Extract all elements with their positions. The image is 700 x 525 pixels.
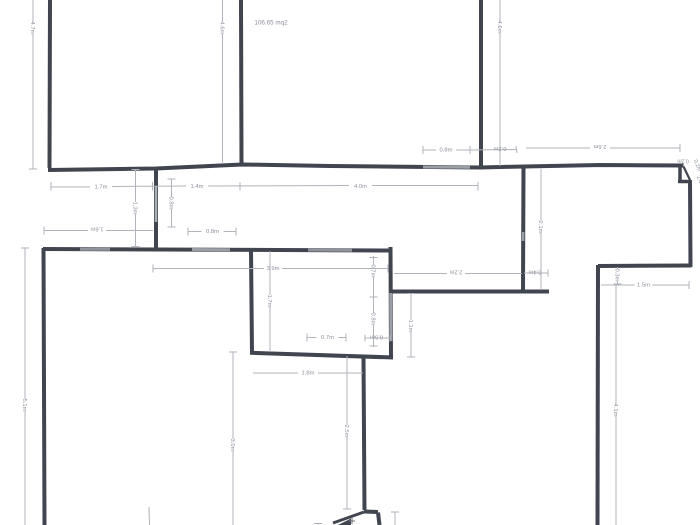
svg-text:0.3m: 0.3m bbox=[614, 269, 620, 282]
svg-text:0.8m: 0.8m bbox=[440, 148, 453, 154]
svg-text:0.4m: 0.4m bbox=[528, 269, 541, 275]
svg-text:0.8m: 0.8m bbox=[206, 229, 219, 235]
svg-text:1.1m: 1.1m bbox=[407, 320, 413, 333]
svg-text:4.0m: 4.0m bbox=[354, 184, 367, 190]
svg-text:0.7m: 0.7m bbox=[321, 335, 334, 341]
svg-text:106.65 mq2: 106.65 mq2 bbox=[254, 20, 288, 27]
svg-text:4.6m: 4.6m bbox=[219, 22, 225, 35]
svg-text:4.1m: 4.1m bbox=[612, 404, 618, 417]
svg-text:1.5m: 1.5m bbox=[637, 283, 650, 289]
svg-text:2.2m: 2.2m bbox=[449, 269, 462, 275]
svg-text:0.8m: 0.8m bbox=[370, 313, 376, 326]
svg-text:4.6m: 4.6m bbox=[496, 21, 502, 34]
svg-text:4.7m: 4.7m bbox=[29, 22, 35, 35]
svg-text:0.7m: 0.7m bbox=[370, 265, 376, 278]
svg-text:1.7m: 1.7m bbox=[266, 295, 272, 308]
svg-text:3.9m: 3.9m bbox=[267, 266, 280, 272]
svg-text:0.5m: 0.5m bbox=[370, 334, 383, 340]
svg-text:5.1m: 5.1m bbox=[21, 399, 27, 412]
svg-text:1.4m: 1.4m bbox=[191, 184, 204, 190]
svg-text:0.2m: 0.2m bbox=[677, 158, 689, 164]
svg-text:1.7m: 1.7m bbox=[95, 185, 108, 191]
svg-text:3.0m: 3.0m bbox=[229, 439, 235, 452]
svg-text:2.6m: 2.6m bbox=[593, 143, 606, 149]
svg-text:2.5m: 2.5m bbox=[343, 425, 349, 438]
svg-text:2.1m: 2.1m bbox=[537, 221, 543, 234]
svg-text:0.8m: 0.8m bbox=[168, 197, 174, 210]
svg-text:1.6m: 1.6m bbox=[90, 226, 103, 232]
svg-text:0.2m: 0.2m bbox=[493, 145, 506, 151]
svg-text:1.8m: 1.8m bbox=[302, 371, 315, 377]
svg-text:1.3m: 1.3m bbox=[132, 202, 138, 215]
